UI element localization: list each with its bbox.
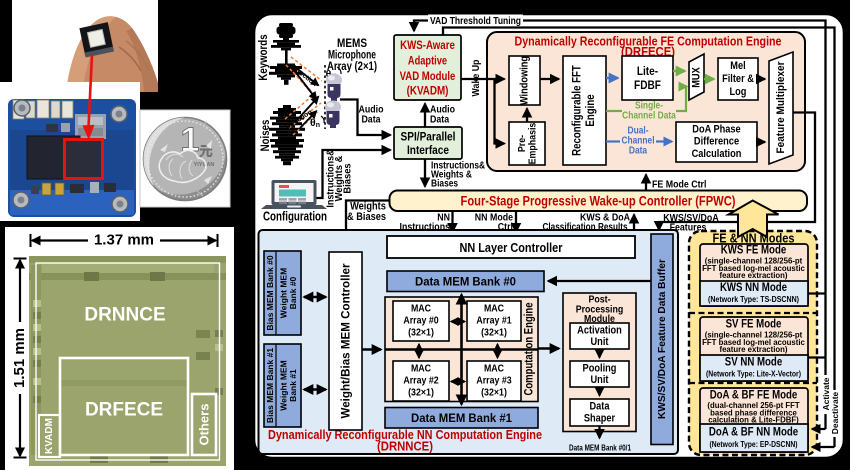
svg-text:1.37 mm: 1.37 mm bbox=[94, 232, 154, 249]
svg-text:SV NN Mode: SV NN Mode bbox=[725, 357, 782, 369]
svg-text:(KVADM): (KVADM) bbox=[407, 86, 449, 98]
svg-text:(Network Type: Lite-X-Vector): (Network Type: Lite-X-Vector) bbox=[706, 370, 801, 379]
svg-text:Data MEM Bank #0/1: Data MEM Bank #0/1 bbox=[569, 443, 631, 453]
svg-text:Log: Log bbox=[730, 86, 747, 98]
svg-text:Unit: Unit bbox=[591, 374, 609, 386]
svg-text:Interface: Interface bbox=[407, 143, 449, 157]
svg-text:FE Mode Ctrl: FE Mode Ctrl bbox=[652, 179, 706, 191]
svg-text:Unit: Unit bbox=[591, 336, 609, 348]
svg-text:Four-Stage Progressive Wake-up: Four-Stage Progressive Wake-up Controlle… bbox=[461, 194, 736, 209]
svg-text:DoA & BF FE Mode: DoA & BF FE Mode bbox=[710, 390, 798, 402]
svg-text:Difference: Difference bbox=[694, 136, 739, 148]
svg-text:Deactivate: Deactivate bbox=[830, 391, 840, 434]
svg-text:feature extraction): feature extraction) bbox=[719, 271, 787, 280]
svg-text:KWS/SV/DoA Feature Data Buffer: KWS/SV/DoA Feature Data Buffer bbox=[656, 259, 668, 419]
svg-text:VAD Module: VAD Module bbox=[400, 71, 456, 83]
svg-text:(DRNNCE): (DRNNCE) bbox=[377, 440, 433, 454]
svg-text:Array (2×1): Array (2×1) bbox=[327, 61, 377, 73]
svg-text:Feature Multiplexer: Feature Multiplexer bbox=[775, 61, 787, 154]
svg-text:KWS NN Mode: KWS NN Mode bbox=[720, 282, 787, 294]
svg-text:Weight MEM: Weight MEM bbox=[279, 268, 289, 318]
svg-text:Filter &: Filter & bbox=[722, 73, 754, 85]
svg-text:KVADM: KVADM bbox=[44, 418, 55, 454]
svg-text:(32×1): (32×1) bbox=[408, 327, 434, 339]
svg-text:Weight/Bias MEM Controller: Weight/Bias MEM Controller bbox=[339, 263, 353, 418]
svg-text:Data: Data bbox=[629, 146, 648, 157]
svg-text:Calculation: Calculation bbox=[692, 148, 742, 160]
svg-text:Data MEM Bank #1: Data MEM Bank #1 bbox=[411, 411, 512, 425]
svg-text:Biases: Biases bbox=[343, 163, 354, 194]
svg-text:Microphone: Microphone bbox=[328, 50, 376, 62]
svg-text:SV FE Mode: SV FE Mode bbox=[726, 319, 782, 331]
svg-text:Bank #1: Bank #1 bbox=[288, 369, 298, 402]
svg-text:Reconfigurable FFT: Reconfigurable FFT bbox=[572, 65, 584, 156]
svg-text:Array #1: Array #1 bbox=[476, 315, 511, 327]
svg-text:Channel Data: Channel Data bbox=[622, 111, 676, 122]
svg-text:SPI/Parallel: SPI/Parallel bbox=[401, 130, 456, 144]
svg-text:Data: Data bbox=[430, 114, 449, 126]
svg-text:Others: Others bbox=[197, 404, 212, 446]
svg-text:NN Layer Controller: NN Layer Controller bbox=[460, 240, 563, 255]
svg-text:(32×1): (32×1) bbox=[481, 387, 507, 399]
svg-text:Data: Data bbox=[590, 401, 611, 413]
svg-text:Adaptive: Adaptive bbox=[408, 56, 447, 68]
svg-text:Engine: Engine bbox=[585, 94, 597, 126]
svg-text:KWS FE Mode: KWS FE Mode bbox=[721, 245, 787, 257]
svg-text:Array #3: Array #3 bbox=[476, 375, 511, 387]
svg-text:(32×1): (32×1) bbox=[408, 387, 434, 399]
svg-text:FDBF: FDBF bbox=[634, 78, 661, 92]
svg-text:MAC: MAC bbox=[484, 303, 504, 315]
svg-text:Array #0: Array #0 bbox=[403, 315, 438, 327]
svg-text:MEMS: MEMS bbox=[337, 38, 367, 50]
svg-text:calculation & Lite-FDBF): calculation & Lite-FDBF) bbox=[708, 416, 799, 425]
svg-text:MAC: MAC bbox=[484, 363, 504, 375]
svg-text:Wake Up: Wake Up bbox=[470, 60, 482, 97]
svg-text:Windowing: Windowing bbox=[519, 56, 531, 105]
svg-text:1: 1 bbox=[181, 121, 200, 159]
svg-text:(Network Type: EP-DSCNN): (Network Type: EP-DSCNN) bbox=[710, 440, 798, 449]
svg-text:Weight MEM: Weight MEM bbox=[279, 360, 289, 410]
svg-text:Keywords: Keywords bbox=[258, 34, 270, 80]
svg-text:Data MEM Bank #0: Data MEM Bank #0 bbox=[415, 275, 516, 289]
svg-text:Shaper: Shaper bbox=[584, 413, 616, 425]
svg-text:(32×1): (32×1) bbox=[481, 327, 507, 339]
svg-text:Noises: Noises bbox=[260, 120, 272, 152]
svg-text:Lite-: Lite- bbox=[637, 64, 658, 78]
svg-text:DRNNCE: DRNNCE bbox=[84, 305, 165, 326]
svg-text:DRFECE: DRFECE bbox=[85, 400, 163, 421]
svg-text:Pooling: Pooling bbox=[583, 363, 617, 375]
svg-text:Emphasis: Emphasis bbox=[527, 123, 539, 165]
svg-text:Biases: Biases bbox=[431, 179, 458, 190]
svg-text:MAC: MAC bbox=[411, 303, 431, 315]
svg-text:Bias MEM Bank #0: Bias MEM Bank #0 bbox=[265, 255, 275, 330]
svg-text:Bias MEM Bank #1: Bias MEM Bank #1 bbox=[265, 348, 275, 423]
svg-text:Configuration: Configuration bbox=[263, 209, 327, 224]
svg-text:Mel: Mel bbox=[730, 60, 745, 72]
svg-text:MAC: MAC bbox=[411, 363, 431, 375]
svg-text:feature extraction): feature extraction) bbox=[719, 345, 787, 354]
svg-text:VAD Threshold Tuning: VAD Threshold Tuning bbox=[430, 15, 521, 27]
svg-text:DoA & BF NN Mode: DoA & BF NN Mode bbox=[709, 427, 798, 439]
svg-text:Bank #0: Bank #0 bbox=[288, 276, 298, 309]
svg-text:Array #2: Array #2 bbox=[403, 375, 438, 387]
svg-text:KWS-Aware: KWS-Aware bbox=[400, 40, 455, 52]
svg-text:Activation: Activation bbox=[577, 325, 622, 337]
svg-text:YIYUAN: YIYUAN bbox=[194, 162, 215, 168]
svg-text:Data: Data bbox=[361, 114, 380, 126]
svg-text:(Network Type: TS-DSCNN): (Network Type: TS-DSCNN) bbox=[708, 295, 799, 304]
svg-text:MUX: MUX bbox=[691, 67, 703, 88]
svg-text:1.51 mm: 1.51 mm bbox=[11, 328, 28, 388]
svg-text:DoA Phase: DoA Phase bbox=[692, 124, 740, 136]
svg-text:& Biases: & Biases bbox=[347, 211, 386, 223]
